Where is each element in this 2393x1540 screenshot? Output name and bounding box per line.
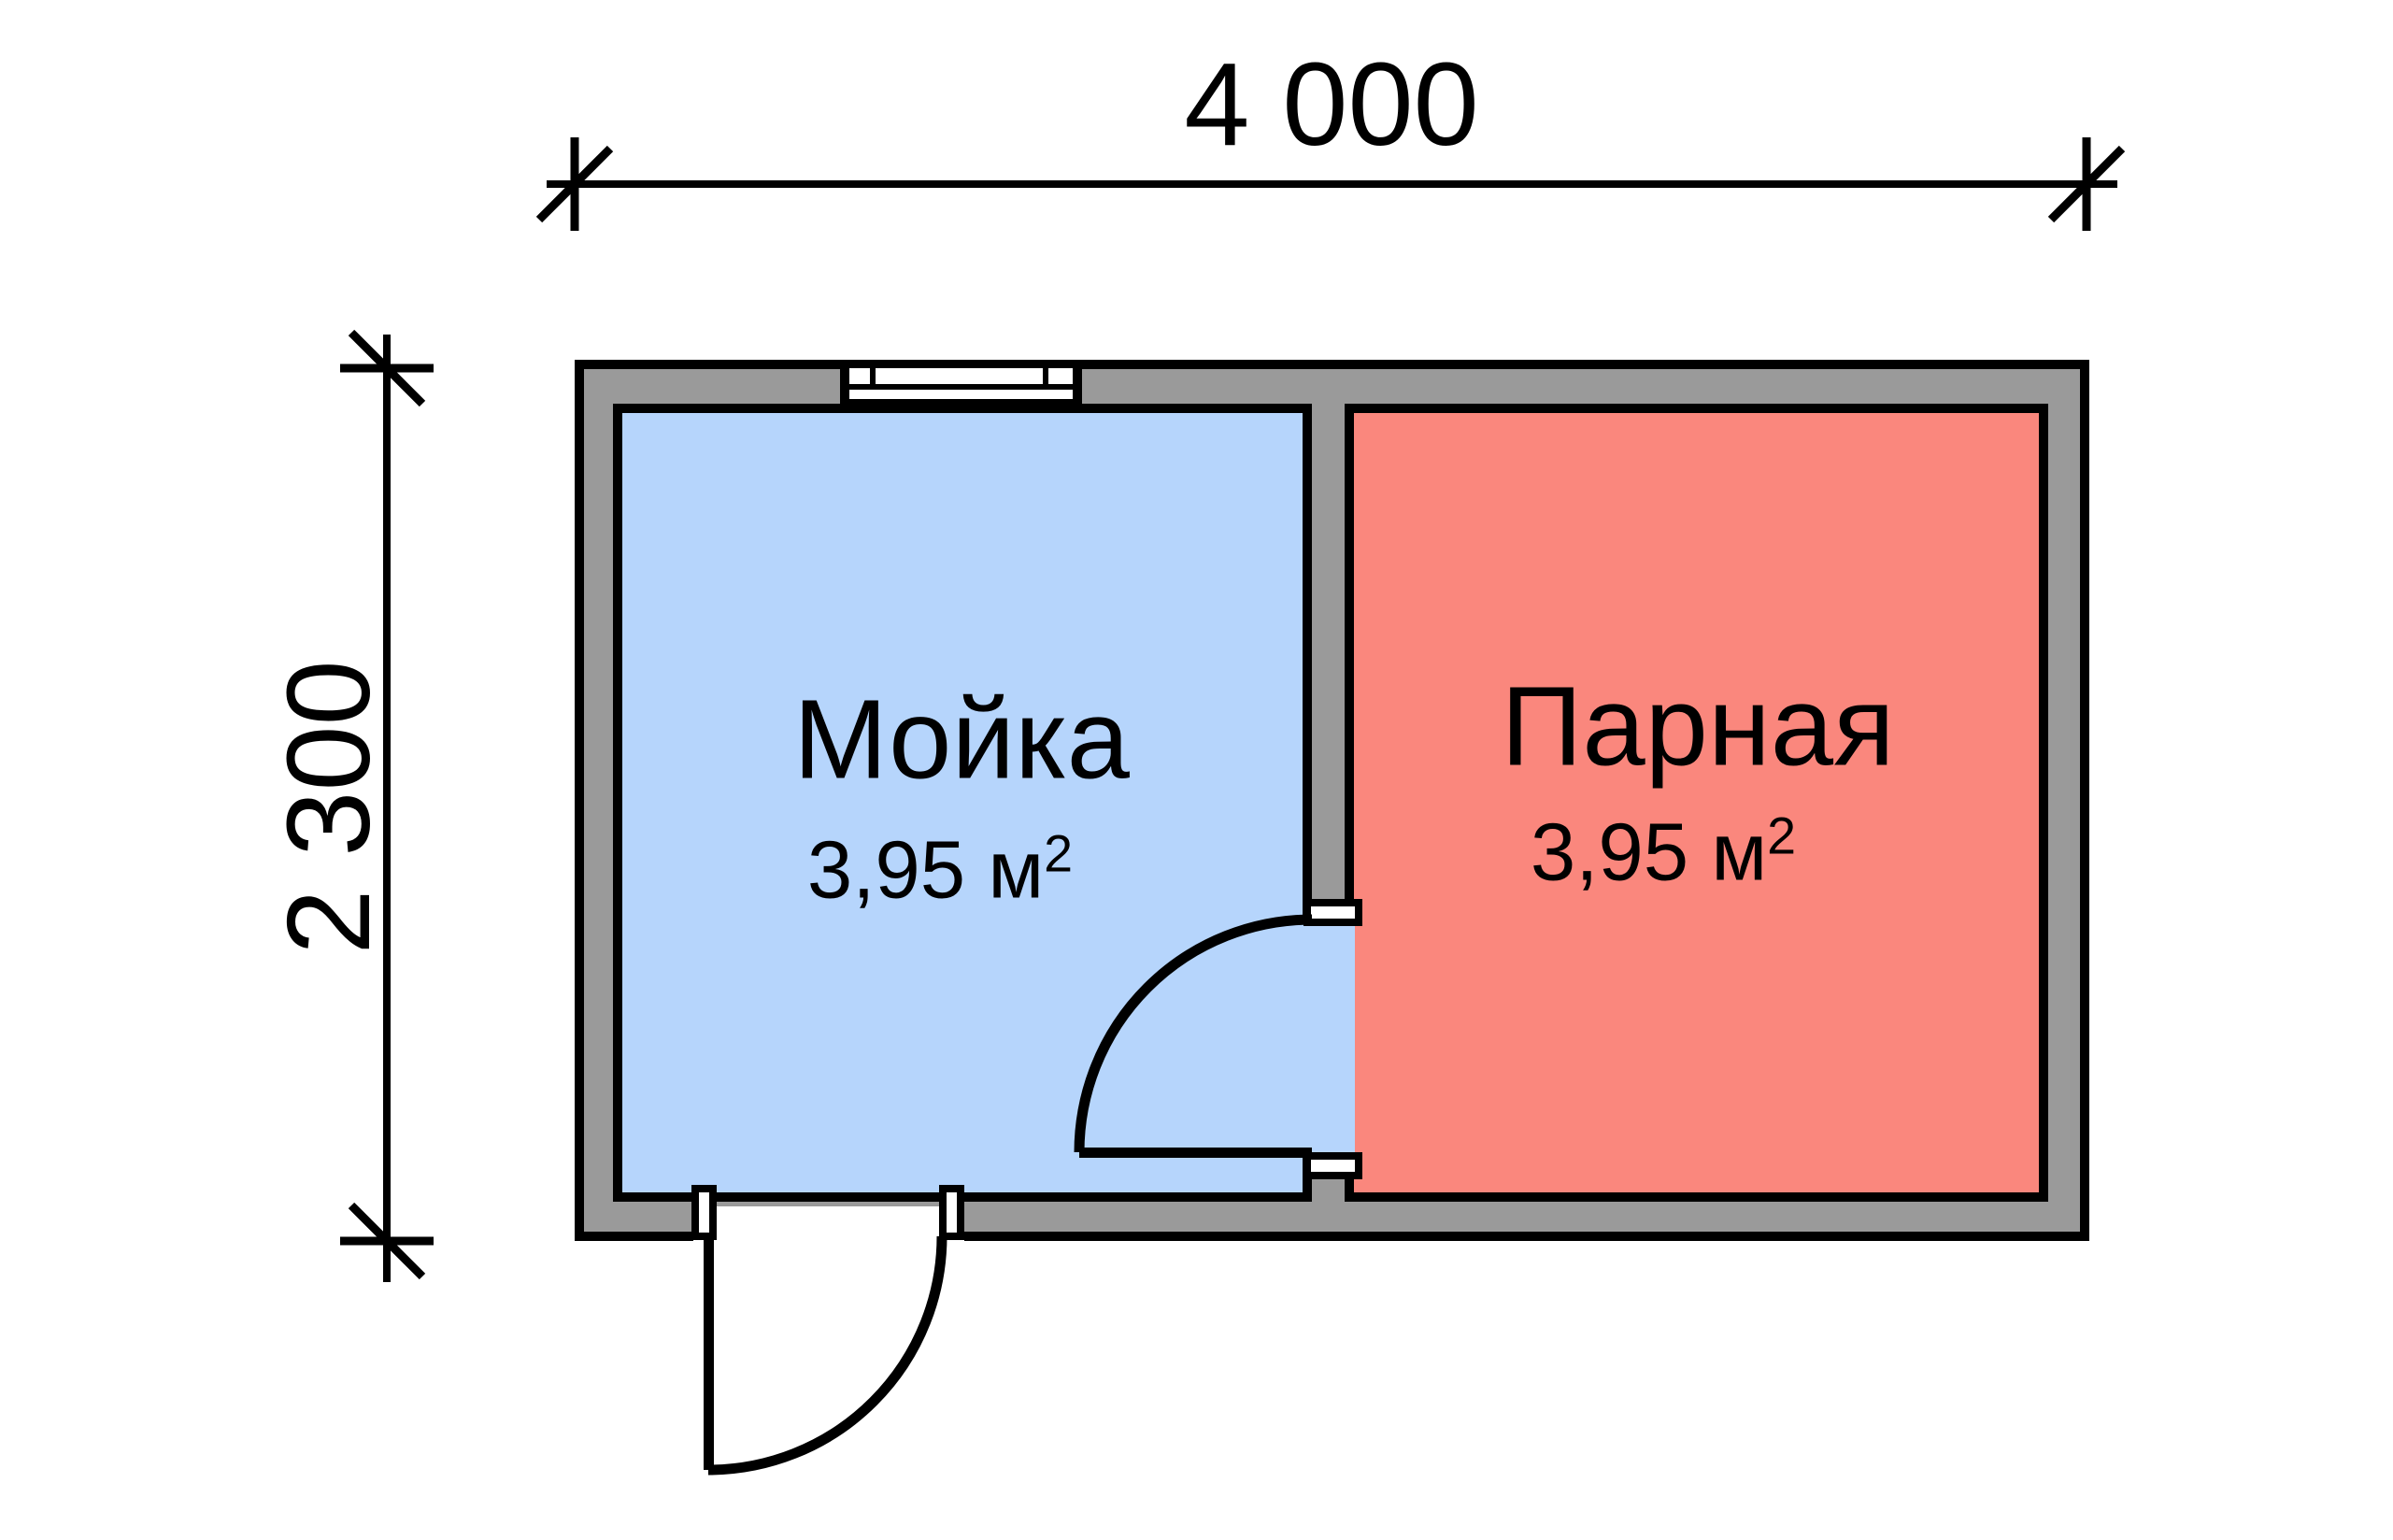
exterior-door-jamb-right bbox=[943, 1189, 961, 1236]
exterior-door-swing-arc bbox=[708, 1236, 942, 1470]
interior-door-jamb-bottom bbox=[1307, 1156, 1359, 1176]
interior-door-jamb-top bbox=[1307, 903, 1359, 922]
room-name-parnaya: Парная bbox=[1501, 670, 1894, 783]
window-inner-sill-line bbox=[840, 399, 1082, 408]
room-area-parnaya-value: 3,95 м bbox=[1531, 807, 1767, 898]
exterior-door-leaf bbox=[704, 1236, 714, 1470]
room-area-parnaya-sup: 2 bbox=[1767, 807, 1796, 865]
room-parnaya-floor bbox=[1349, 408, 2044, 1197]
room-area-parnaya: 3,95 м2 bbox=[1531, 812, 1796, 893]
floor-plan-canvas: 4 000 2 300 Мойка 3,95 м2 Парная 3,95 м2 bbox=[0, 0, 2393, 1540]
dimension-width-label: 4 000 bbox=[1184, 46, 1478, 164]
exterior-door bbox=[693, 1189, 964, 1470]
interior-doorway-gap bbox=[1303, 922, 1355, 1156]
window-mullion-right bbox=[1043, 368, 1048, 384]
exterior-door-jamb-left bbox=[695, 1189, 713, 1236]
room-area-moyka-sup: 2 bbox=[1044, 825, 1073, 883]
room-area-moyka: 3,95 м2 bbox=[807, 830, 1073, 911]
room-area-moyka-value: 3,95 м bbox=[807, 825, 1044, 916]
exterior-doorway-gap bbox=[693, 1206, 964, 1241]
window-mullion-left bbox=[870, 368, 876, 384]
interior-door-leaf bbox=[1079, 1148, 1312, 1158]
dimension-height-label: 2 300 bbox=[270, 660, 388, 954]
room-name-moyka: Мойка bbox=[793, 683, 1130, 796]
window bbox=[840, 364, 1082, 408]
window-glass-line bbox=[840, 384, 1082, 390]
room-moyka-floor bbox=[618, 408, 1307, 1197]
